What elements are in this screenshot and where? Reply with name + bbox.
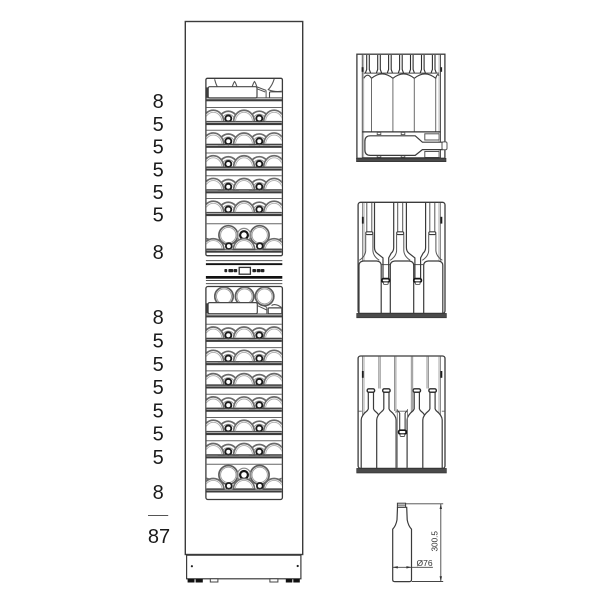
svg-text:300.5: 300.5 xyxy=(431,531,440,552)
svg-text:8: 8 xyxy=(153,91,164,113)
svg-text:5: 5 xyxy=(153,377,164,399)
svg-text:Ø76: Ø76 xyxy=(417,558,433,568)
svg-text:5: 5 xyxy=(153,182,164,204)
svg-text:5: 5 xyxy=(153,424,164,446)
svg-text:5: 5 xyxy=(153,447,164,469)
svg-text:5: 5 xyxy=(153,137,164,159)
svg-text:5: 5 xyxy=(153,205,164,227)
svg-text:8: 8 xyxy=(153,482,164,504)
svg-text:8: 8 xyxy=(153,242,164,264)
svg-text:8: 8 xyxy=(153,307,164,329)
svg-text:5: 5 xyxy=(153,114,164,136)
svg-text:87: 87 xyxy=(148,526,170,548)
svg-text:5: 5 xyxy=(153,400,164,422)
svg-text:5: 5 xyxy=(153,159,164,181)
svg-text:5: 5 xyxy=(153,354,164,376)
svg-text:5: 5 xyxy=(153,331,164,353)
